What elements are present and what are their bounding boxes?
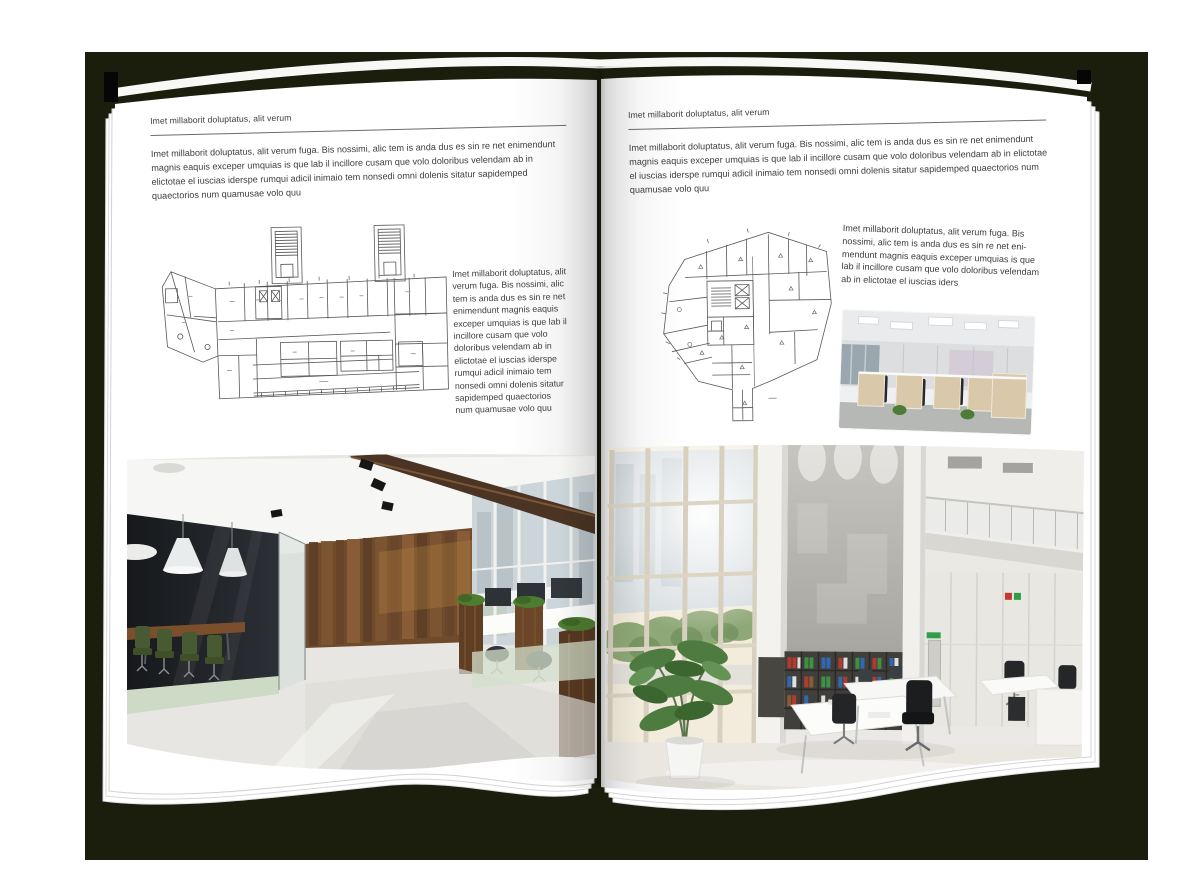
plan-room-markers [677,253,818,405]
right-large-office-photo [606,442,1086,797]
right-small-office-photo [839,310,1035,435]
exit-sign [927,632,941,638]
right-page-top-block: Imet millaborit doluptatus, alit verum I… [628,100,1050,197]
right-floor-plan-drawing [648,211,837,428]
right-header-rule [628,120,1046,130]
right-floor-plan-figure [648,211,837,428]
left-header-rule [150,125,566,136]
cover-notch-left [104,72,118,102]
cover-notch-right [1077,70,1091,84]
left-floor-plan-figure [158,221,454,419]
magazine-mockup-canvas: Imet millaborit doluptatus, alit verum I… [0,0,1200,891]
left-side-text: Imet millaborit doluptatus, alit verum f… [452,265,570,417]
left-floor-plan-drawing [158,221,454,419]
right-side-text: Imet millaborit doluptatus, alit verum f… [841,222,1041,292]
right-intro-paragraph: Imet millaborit doluptatus, alit verum f… [629,131,1050,197]
left-office-photo [127,452,597,774]
left-page-top-block: Imet millaborit doluptatus, alit verum I… [150,106,572,203]
left-intro-paragraph: Imet millaborit doluptatus, alit verum f… [151,137,570,203]
